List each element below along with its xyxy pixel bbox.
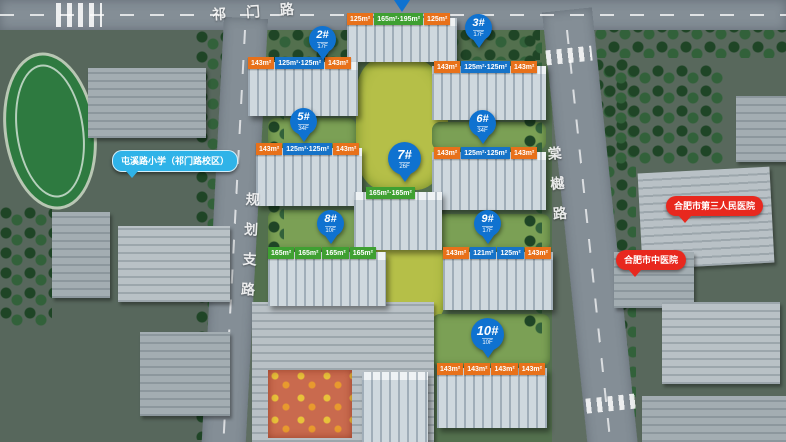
unit-label: 121m² [470,247,496,259]
pin-2-number: 2# [316,30,328,41]
pin-8-body: 8# 10F [317,210,344,237]
west-building-2 [118,226,230,302]
pin-3-tail [472,38,486,48]
unit-label: 143m² [434,147,460,159]
pin-3[interactable]: 3# 17F [465,14,492,48]
unit-label: 125m² [424,13,450,25]
west-building-1 [52,212,110,298]
pin-7-number: 7# [397,148,411,161]
unit-label: 143m² [437,363,463,375]
pin-6[interactable]: 6# 34F [469,110,496,144]
unit-label: 143m² [256,143,282,155]
pin-7-floors: 26F [399,162,409,170]
pin-3-floors: 17F [473,30,483,38]
pin-5-tail [297,132,311,142]
building-7-tower [354,192,442,250]
building-9-tower [443,252,553,310]
building-7-label-row: 165m²·165m² [366,187,415,199]
unit-label: 125m²·125m² [461,61,510,73]
pin-2-tail [316,50,330,60]
building-8-label-row: 165m² 165m² 165m² 165m² [268,247,376,259]
pin-2[interactable]: 2# 17F [309,26,336,60]
unit-label: 165m²·195m² [374,13,423,25]
pin-5-body: 5# 34F [290,108,317,135]
pin-10-number: 10# [477,324,499,337]
unit-label: 143m² [464,363,490,375]
tower-bottom-center [362,372,428,442]
pin-10-tail [481,348,495,358]
east-building-3 [662,302,780,384]
hospital-tcm-bubble[interactable]: 合肥市中医院 [616,250,686,270]
building-9-label-row: 143m² 121m² 125m² 143m² [443,247,551,259]
pin-2-floors: 17F [317,42,327,50]
east-trees-patch [604,64,724,164]
pin-3-number: 3# [472,18,484,29]
pin-10-floors: 10F [482,338,492,346]
pin-2-body: 2# 17F [309,26,336,53]
building-5-label-row: 143m² 125m²·125m² 143m² [256,143,359,155]
building-3-label-row: 143m² 125m²·125m² 143m² [434,61,537,73]
pin-1-tip[interactable] [394,0,410,12]
unit-label: 143m² [519,363,545,375]
pin-8-floors: 10F [325,226,335,234]
building-6-tower [432,152,546,210]
pin-5-floors: 34F [298,124,308,132]
site-plan-canvas: 祁门路 规划支路 棠樾路 125m² 165m²·195m² 125m² 143… [0,0,786,442]
east-building-5 [642,396,786,442]
pin-6-body: 6# 34F [469,110,496,137]
unit-label: 143m² [443,247,469,259]
unit-label: 143m² [491,363,517,375]
school-building [88,68,206,138]
pin-8-tail [324,234,338,244]
building-5-tower [256,148,362,206]
building-1-label-row: 125m² 165m²·195m² 125m² [347,13,450,25]
building-10-tower [437,368,547,428]
unit-label: 143m² [511,147,537,159]
east-building-4 [736,96,786,162]
unit-label: 125m²·125m² [283,143,332,155]
pin-9[interactable]: 9# 17F [474,210,501,244]
school-bubble[interactable]: 屯溪路小学（祁门路校区） [112,150,238,172]
pin-8[interactable]: 8# 10F [317,210,344,244]
pin-7-tail [398,172,412,182]
unit-label: 125m²·125m² [461,147,510,159]
unit-label: 143m² [511,61,537,73]
pin-7-body: 7# 26F [388,142,421,175]
unit-label: 165m² [295,247,321,259]
pin-9-tail [481,234,495,244]
pin-5[interactable]: 5# 34F [290,108,317,142]
building-6-label-row: 143m² 125m²·125m² 143m² [434,147,537,159]
pin-7[interactable]: 7# 26F [388,142,421,182]
pin-9-body: 9# 17F [474,210,501,237]
building-10-label-row: 143m² 143m² 143m² 143m² [437,363,545,375]
unit-label: 143m² [333,143,359,155]
pin-6-number: 6# [476,114,488,125]
unit-label: 165m² [268,247,294,259]
unit-label: 143m² [248,57,274,69]
unit-label: 125m² [347,13,373,25]
pin-9-number: 9# [481,214,493,225]
pin-5-number: 5# [297,112,309,123]
unit-label: 125m² [497,247,523,259]
pin-10[interactable]: 10# 10F [471,318,504,358]
unit-label: 165m²·165m² [366,187,415,199]
pin-6-tail [476,134,490,144]
unit-label: 143m² [525,247,551,259]
pin-9-floors: 17F [482,226,492,234]
building-8-tower [268,252,386,306]
pin-10-body: 10# 10F [471,318,504,351]
crosswalk-north [56,3,102,27]
west-building-3 [140,332,230,416]
hospital-third-bubble[interactable]: 合肥市第三人民医院 [666,196,763,216]
pin-3-body: 3# 17F [465,14,492,41]
unit-label: 143m² [434,61,460,73]
pin-8-number: 8# [324,214,336,225]
west-trees-patch [0,206,52,326]
unit-label: 165m² [322,247,348,259]
unit-label: 165m² [350,247,376,259]
pin-6-floors: 34F [477,126,487,134]
kindergarten-playground [268,370,352,438]
